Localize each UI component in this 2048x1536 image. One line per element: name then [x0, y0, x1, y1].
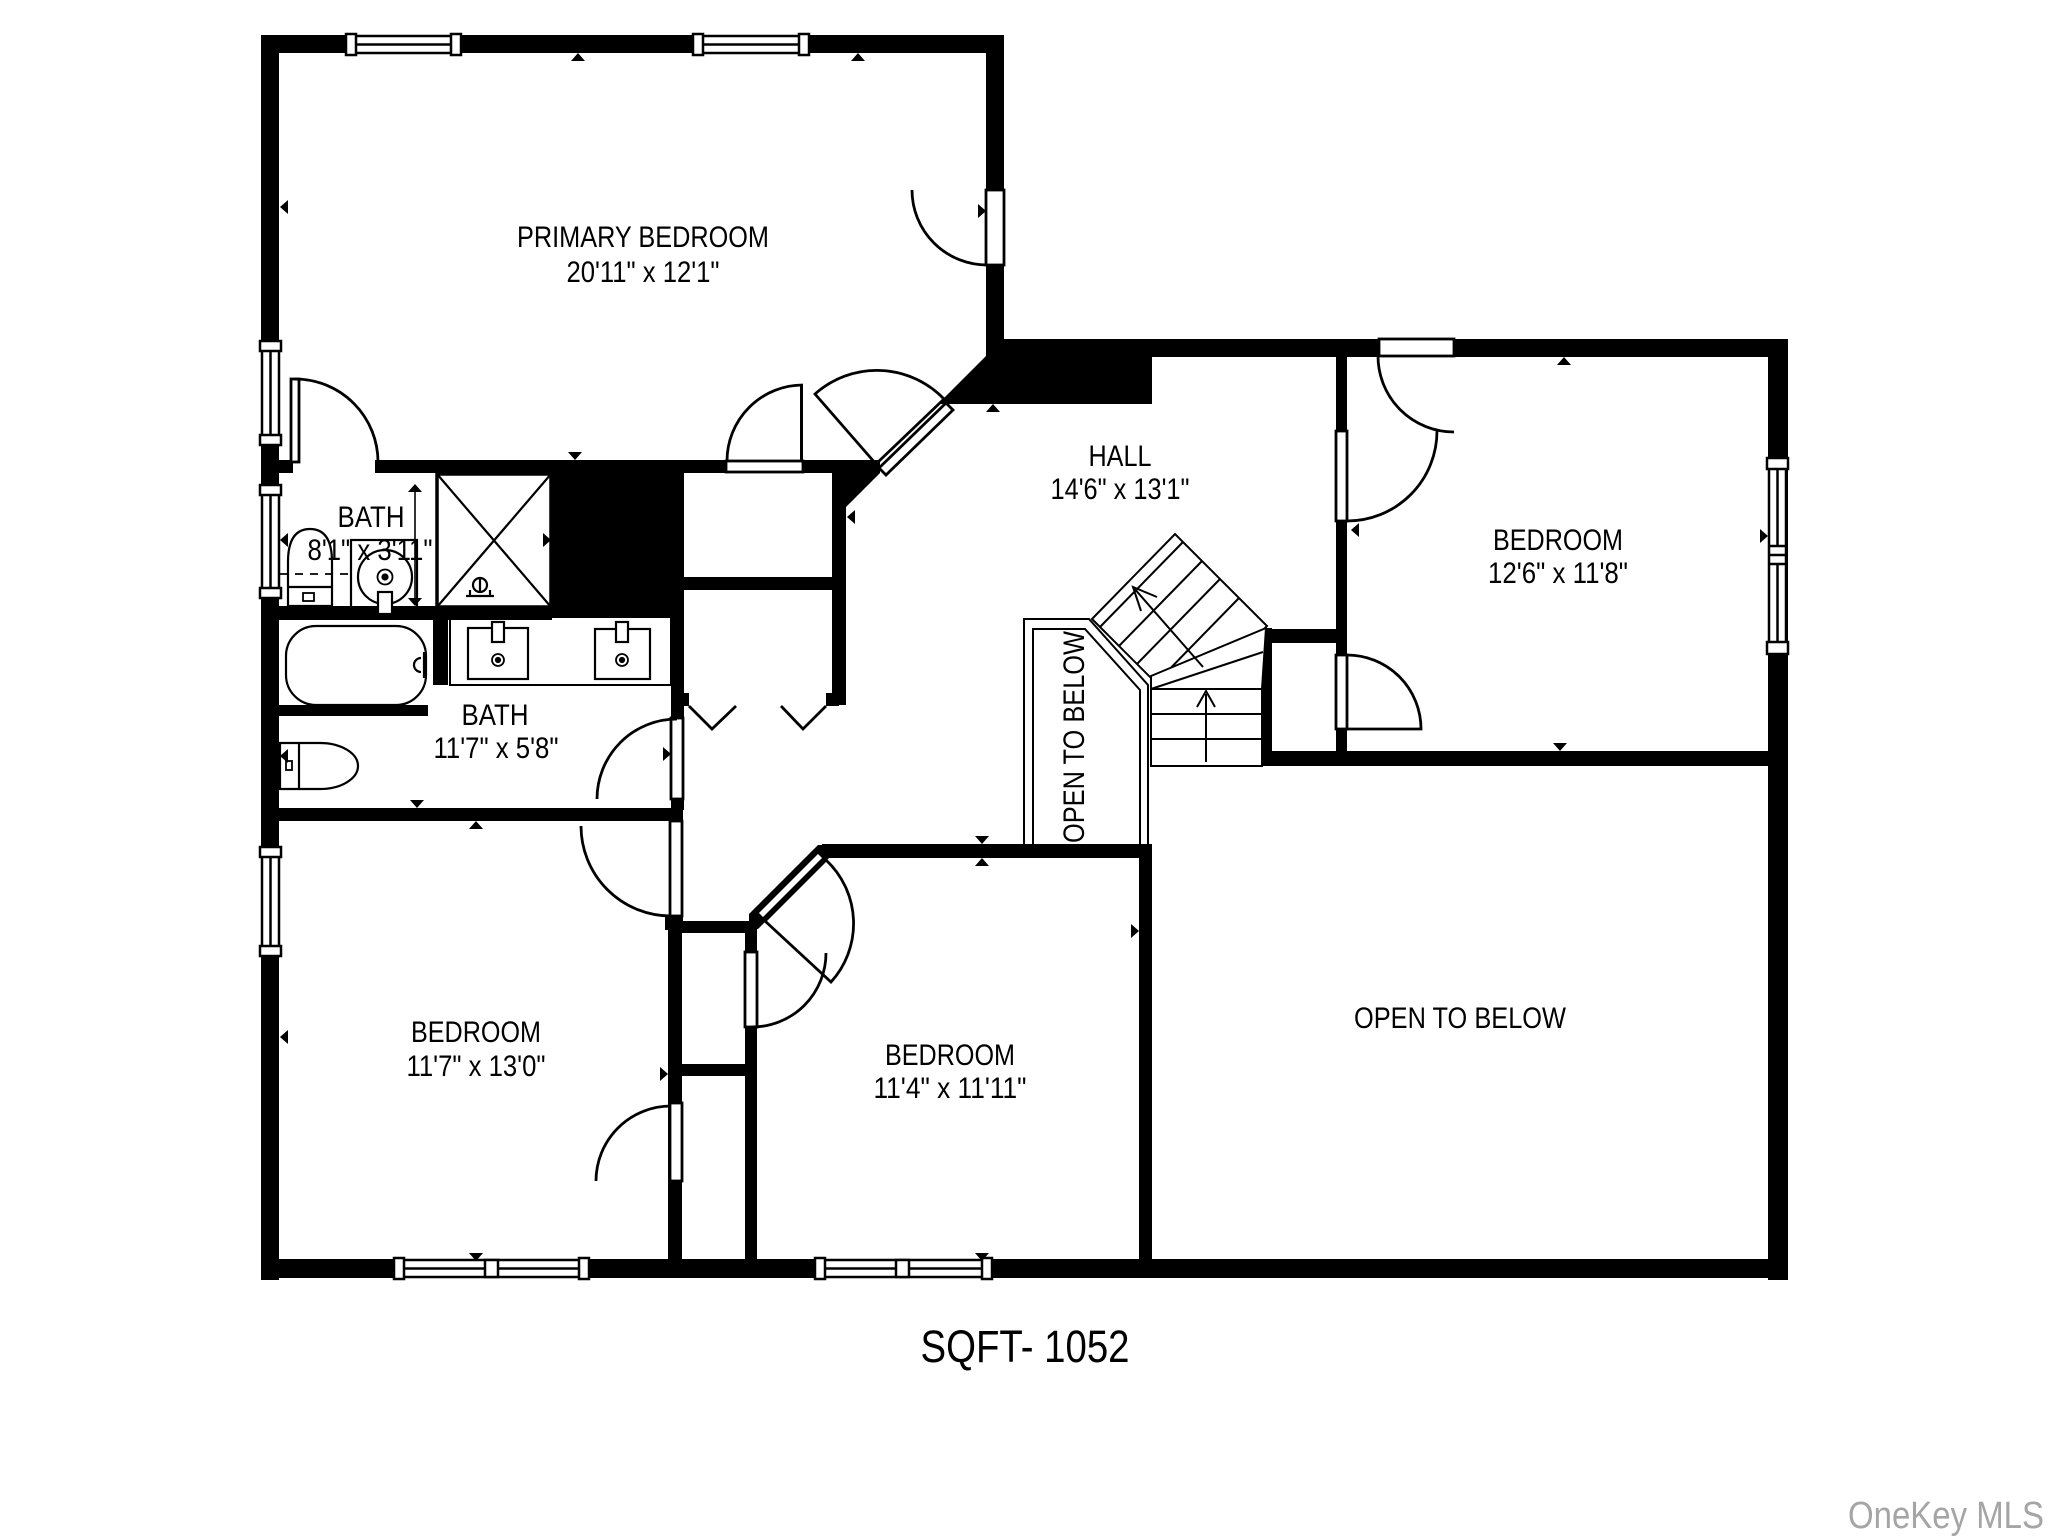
svg-text:PRIMARY BEDROOM: PRIMARY BEDROOM — [517, 221, 769, 254]
svg-text:OPEN TO BELOW: OPEN TO BELOW — [1058, 630, 1091, 843]
svg-text:11'4" x 11'11": 11'4" x 11'11" — [874, 1072, 1027, 1105]
svg-text:12'6" x 11'8": 12'6" x 11'8" — [1488, 557, 1628, 590]
svg-text:11'7" x 13'0": 11'7" x 13'0" — [407, 1050, 546, 1083]
svg-text:SQFT- 1052: SQFT- 1052 — [921, 1321, 1130, 1372]
svg-text:OneKey MLS: OneKey MLS — [1848, 1495, 2044, 1536]
svg-text:OPEN TO BELOW: OPEN TO BELOW — [1354, 1002, 1567, 1035]
svg-text:14'6" x 13'1": 14'6" x 13'1" — [1051, 473, 1190, 506]
svg-text:8'1" x 3'11": 8'1" x 3'11" — [308, 534, 433, 567]
svg-text:11'7" x 5'8": 11'7" x 5'8" — [434, 732, 559, 765]
svg-text:BEDROOM: BEDROOM — [411, 1016, 541, 1049]
svg-text:BATH: BATH — [462, 699, 529, 732]
svg-text:BEDROOM: BEDROOM — [1493, 524, 1623, 557]
svg-text:HALL: HALL — [1089, 440, 1152, 473]
svg-text:BATH: BATH — [338, 501, 405, 534]
svg-text:20'11" x 12'1": 20'11" x 12'1" — [567, 256, 720, 289]
svg-text:BEDROOM: BEDROOM — [885, 1039, 1015, 1072]
